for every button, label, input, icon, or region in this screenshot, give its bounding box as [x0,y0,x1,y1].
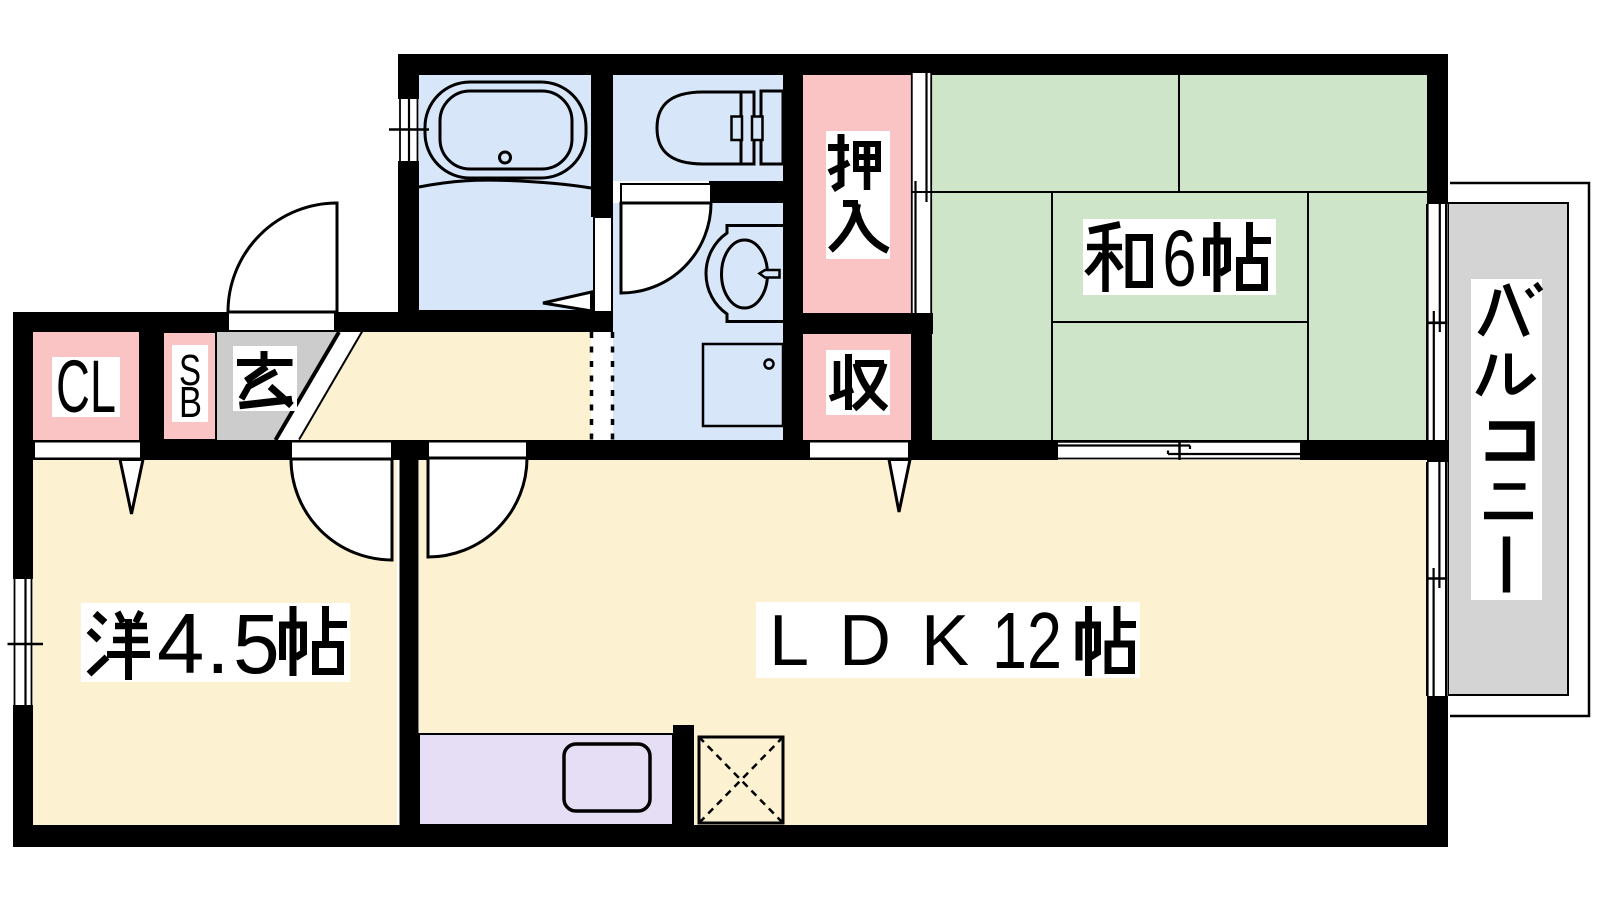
svg-text:12: 12 [992,596,1062,685]
svg-text:CL: CL [56,345,116,428]
svg-text:LDK: LDK [769,601,999,681]
svg-text:5: 5 [233,597,280,691]
svg-text:.: . [206,597,230,692]
svg-text:B: B [179,378,202,427]
svg-text:6: 6 [1163,214,1197,303]
svg-text:4: 4 [157,597,204,692]
